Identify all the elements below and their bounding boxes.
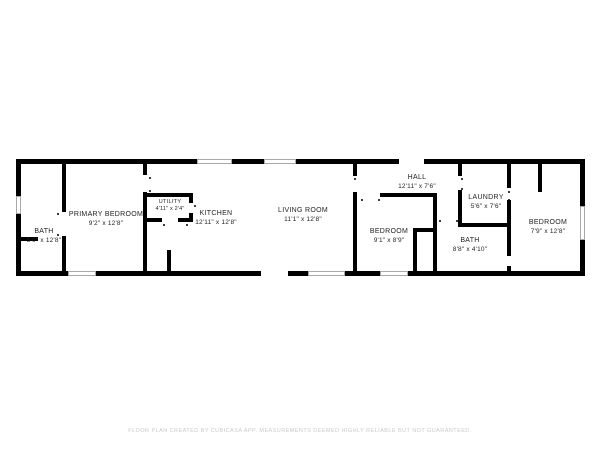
wall-segment: [538, 164, 542, 192]
door-dot: [149, 177, 151, 179]
wall-segment: [413, 230, 417, 271]
door-dot: [194, 205, 196, 207]
room-label-kitchen: KITCHEN 12'11" x 12'8": [195, 209, 237, 227]
room-label-bath-left: BATH 5'0" x 12'8": [27, 227, 61, 245]
wall-segment: [458, 223, 509, 227]
window-marker: [580, 206, 585, 240]
window-marker: [68, 271, 96, 276]
room-name: LIVING ROOM: [278, 206, 328, 215]
wall-left: [16, 159, 21, 276]
room-label-bath-right: BATH 8'8" x 4'10": [453, 236, 487, 254]
room-name: BEDROOM: [529, 218, 567, 227]
door-dot: [461, 178, 463, 180]
room-name: BATH: [27, 227, 61, 236]
wall-segment: [147, 193, 193, 197]
door-dot: [361, 199, 363, 201]
wall-segment: [143, 164, 147, 175]
wall-segment: [507, 164, 511, 188]
room-dims: 11'1" x 12'8": [278, 215, 328, 224]
room-dims: 12'11" x 12'8": [195, 218, 237, 227]
room-name: HALL: [398, 173, 436, 182]
wall-segment: [380, 193, 437, 197]
wall-segment: [433, 197, 437, 271]
wall-top: [16, 159, 585, 164]
door-dot: [378, 199, 380, 201]
room-name: BEDROOM: [370, 227, 408, 236]
room-dims: 12'11" x 7'6": [398, 182, 436, 191]
door-dot: [354, 178, 356, 180]
room-dims: 5'0" x 12'8": [27, 236, 61, 245]
room-name: LAUNDRY: [468, 193, 503, 202]
room-label-hall: HALL 12'11" x 7'6": [398, 173, 436, 191]
door-dot: [149, 190, 151, 192]
wall-segment: [147, 218, 162, 222]
floor-plan-canvas: BATH 5'0" x 12'8" PRIMARY BEDROOM 9'2" x…: [0, 0, 600, 450]
window-marker: [197, 159, 232, 164]
window-marker: [308, 271, 345, 276]
window-marker: [264, 159, 296, 164]
door-dot: [508, 191, 510, 193]
room-label-laundry: LAUNDRY 5'6" x 7'6": [468, 193, 503, 211]
wall-segment: [507, 200, 511, 256]
wall-bottom: [16, 271, 585, 276]
door-dot: [163, 224, 165, 226]
footer-disclaimer: FLOOR PLAN CREATED BY CUBICASA APP. MEAS…: [0, 428, 600, 434]
room-name: PRIMARY BEDROOM: [69, 210, 143, 219]
door-opening: [399, 158, 424, 165]
room-name: UTILITY: [155, 199, 184, 206]
wall-segment: [353, 192, 357, 271]
wall-segment: [458, 190, 462, 227]
room-dims: 7'9" x 12'8": [529, 227, 567, 236]
room-label-bedroom-middle: BEDROOM 9'1" x 8'9": [370, 227, 408, 245]
room-label-primary-bedroom: PRIMARY BEDROOM 9'2" x 12'8": [69, 210, 143, 228]
door-dot: [57, 213, 59, 215]
room-dims: 8'8" x 4'10": [453, 245, 487, 254]
wall-segment: [507, 266, 511, 271]
room-dims: 9'2" x 12'8": [69, 219, 143, 228]
door-dot: [456, 220, 458, 222]
door-dot: [439, 220, 441, 222]
wall-segment: [62, 164, 66, 212]
room-dims: 9'1" x 8'9": [370, 236, 408, 245]
room-name: KITCHEN: [195, 209, 237, 218]
door-dot: [461, 188, 463, 190]
door-dot: [186, 224, 188, 226]
window-marker: [16, 196, 21, 214]
room-label-living-room: LIVING ROOM 11'1" x 12'8": [278, 206, 328, 224]
door-opening: [261, 270, 288, 277]
wall-segment: [353, 164, 357, 176]
wall-segment: [178, 218, 193, 222]
wall-segment: [62, 236, 66, 271]
wall-segment: [189, 193, 193, 203]
wall-segment: [167, 250, 171, 271]
room-dims: 5'6" x 7'6": [468, 202, 503, 211]
room-label-utility: UTILITY 4'11" x 2'4": [155, 199, 184, 213]
door-dot: [508, 199, 510, 201]
wall-segment: [458, 164, 462, 176]
room-name: BATH: [453, 236, 487, 245]
room-label-bedroom-right: BEDROOM 7'9" x 12'8": [529, 218, 567, 236]
wall-segment: [143, 192, 147, 271]
window-marker: [380, 271, 408, 276]
room-dims: 4'11" x 2'4": [155, 206, 184, 213]
